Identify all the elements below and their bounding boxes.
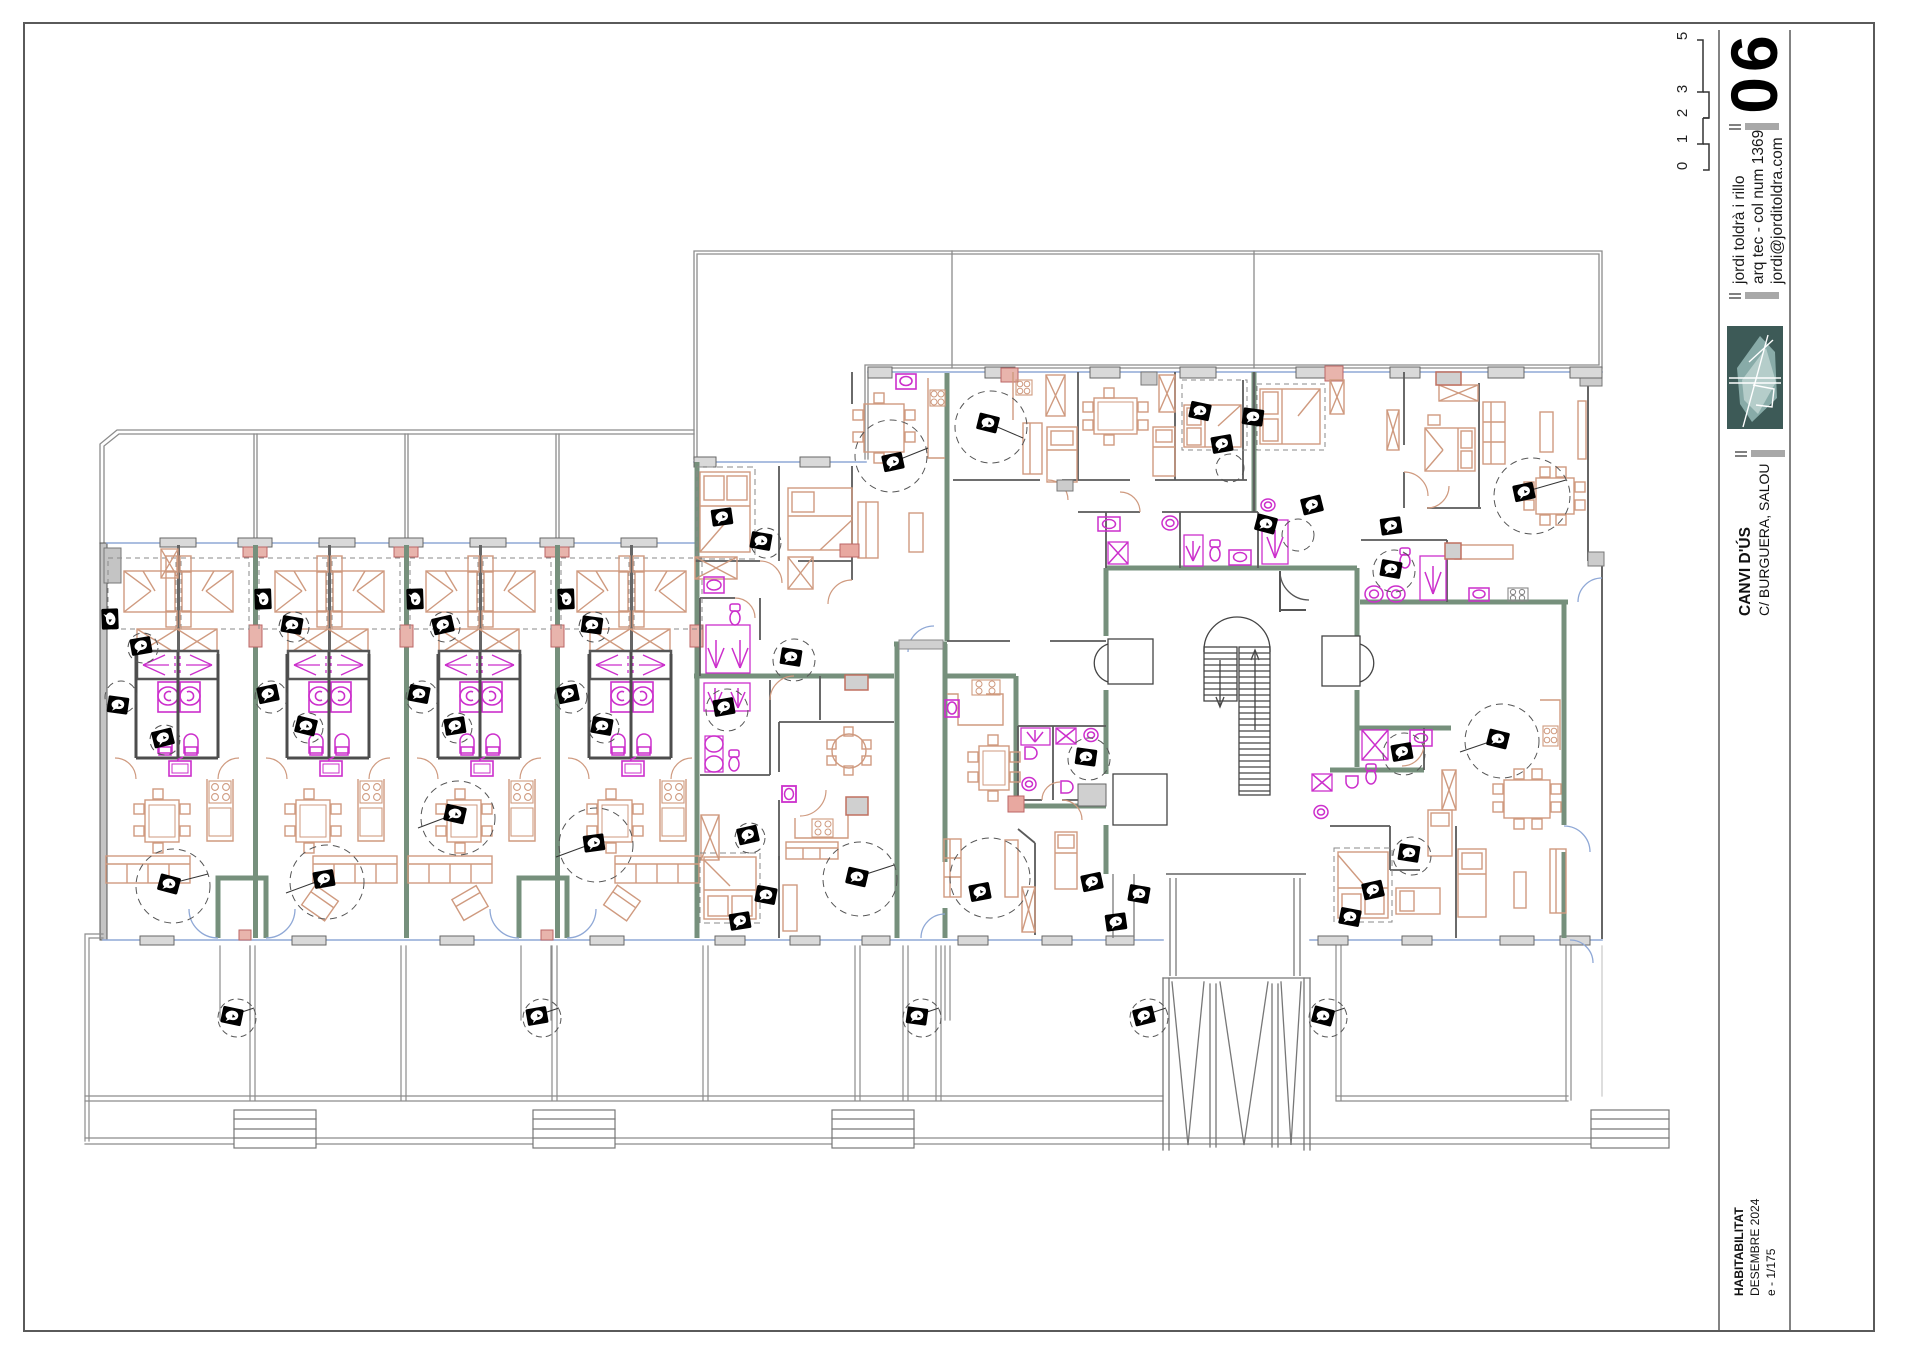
svg-text:jordi@jorditoldra.com: jordi@jorditoldra.com	[1769, 137, 1786, 285]
svg-text:CANVI D'ÚS: CANVI D'ÚS	[1736, 527, 1754, 616]
svg-text:0: 0	[1674, 162, 1691, 170]
svg-text:C/ BURGUERA, SALOU: C/ BURGUERA, SALOU	[1756, 464, 1772, 616]
svg-text:DESEMBRE 2024: DESEMBRE 2024	[1748, 1198, 1762, 1296]
svg-text:06: 06	[1717, 30, 1791, 113]
svg-text:2: 2	[1674, 109, 1691, 117]
svg-text:e - 1/175: e - 1/175	[1764, 1248, 1778, 1296]
svg-text:HABITABILITAT: HABITABILITAT	[1732, 1207, 1746, 1296]
svg-text:1: 1	[1674, 135, 1691, 143]
svg-text:3: 3	[1674, 85, 1691, 93]
svg-text:5: 5	[1674, 32, 1691, 40]
svg-text:jordi toldrà i rillo: jordi toldrà i rillo	[1731, 175, 1748, 285]
svg-text:arq tec - col num 1369: arq tec - col num 1369	[1750, 130, 1767, 284]
